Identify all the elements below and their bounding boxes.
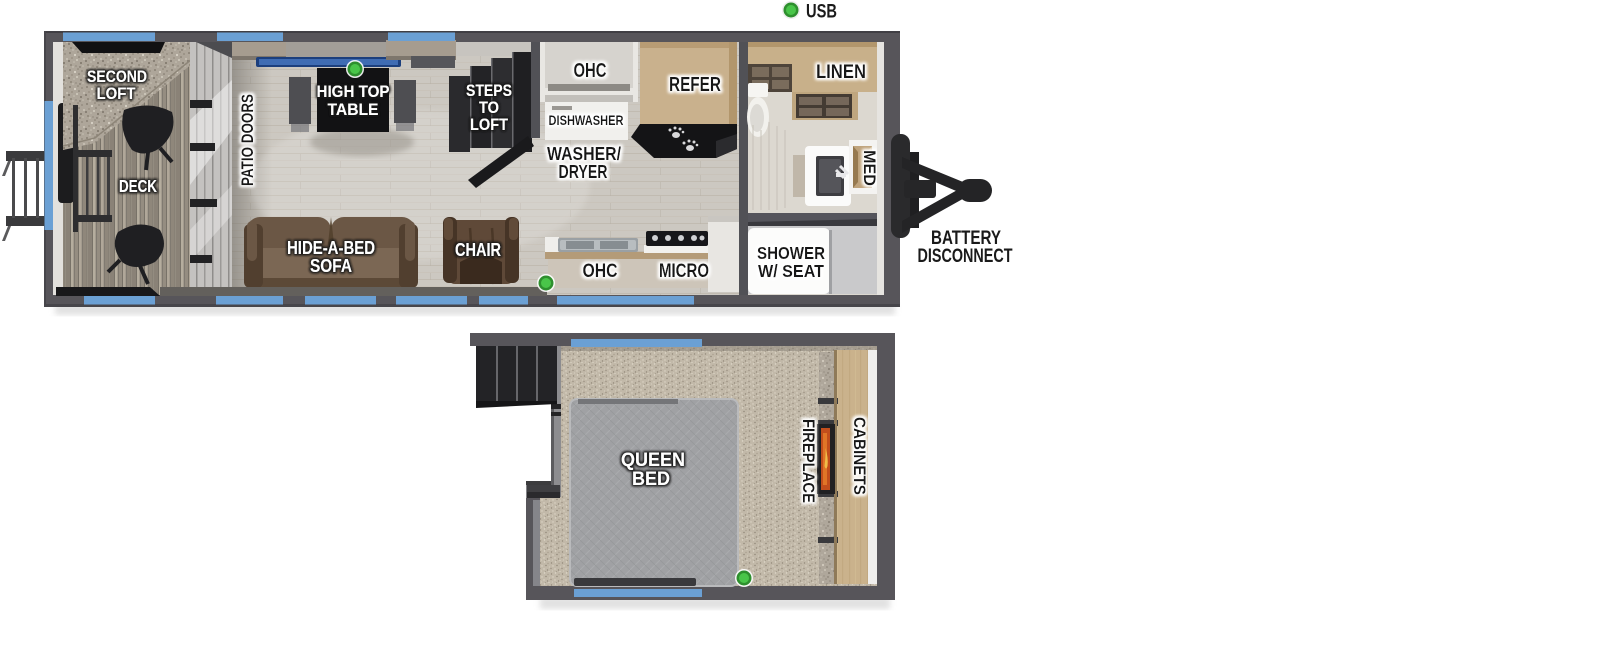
svg-text:REFER: REFER [669,74,721,96]
svg-text:CABINETS: CABINETS [850,417,869,495]
svg-text:DISCONNECT: DISCONNECT [918,246,1013,267]
svg-text:OHC: OHC [574,60,607,82]
svg-text:CHAIR: CHAIR [455,240,501,260]
svg-text:SOFA: SOFA [310,256,352,276]
svg-text:USB: USB [806,2,837,23]
svg-text:DISHWASHER: DISHWASHER [549,113,624,128]
svg-text:TABLE: TABLE [328,100,379,119]
svg-text:SHOWER: SHOWER [757,243,825,263]
svg-text:LOFT: LOFT [97,85,136,103]
svg-text:HIGH TOP: HIGH TOP [317,82,390,101]
svg-text:LINEN: LINEN [816,62,866,83]
svg-text:FIREPLACE: FIREPLACE [799,419,818,503]
svg-text:BED: BED [632,469,670,490]
svg-text:LOFT: LOFT [470,115,509,134]
svg-text:OHC: OHC [583,261,618,282]
svg-text:MED: MED [860,150,879,186]
svg-text:MICRO: MICRO [659,261,709,282]
svg-text:DRYER: DRYER [559,161,608,182]
svg-text:QUEEN: QUEEN [621,450,685,471]
svg-text:HIDE-A-BED: HIDE-A-BED [287,238,375,258]
svg-text:DECK: DECK [119,176,157,196]
svg-text:W/ SEAT: W/ SEAT [758,261,824,281]
svg-text:PATIO DOORS: PATIO DOORS [238,94,257,186]
svg-text:SECOND: SECOND [87,68,147,86]
